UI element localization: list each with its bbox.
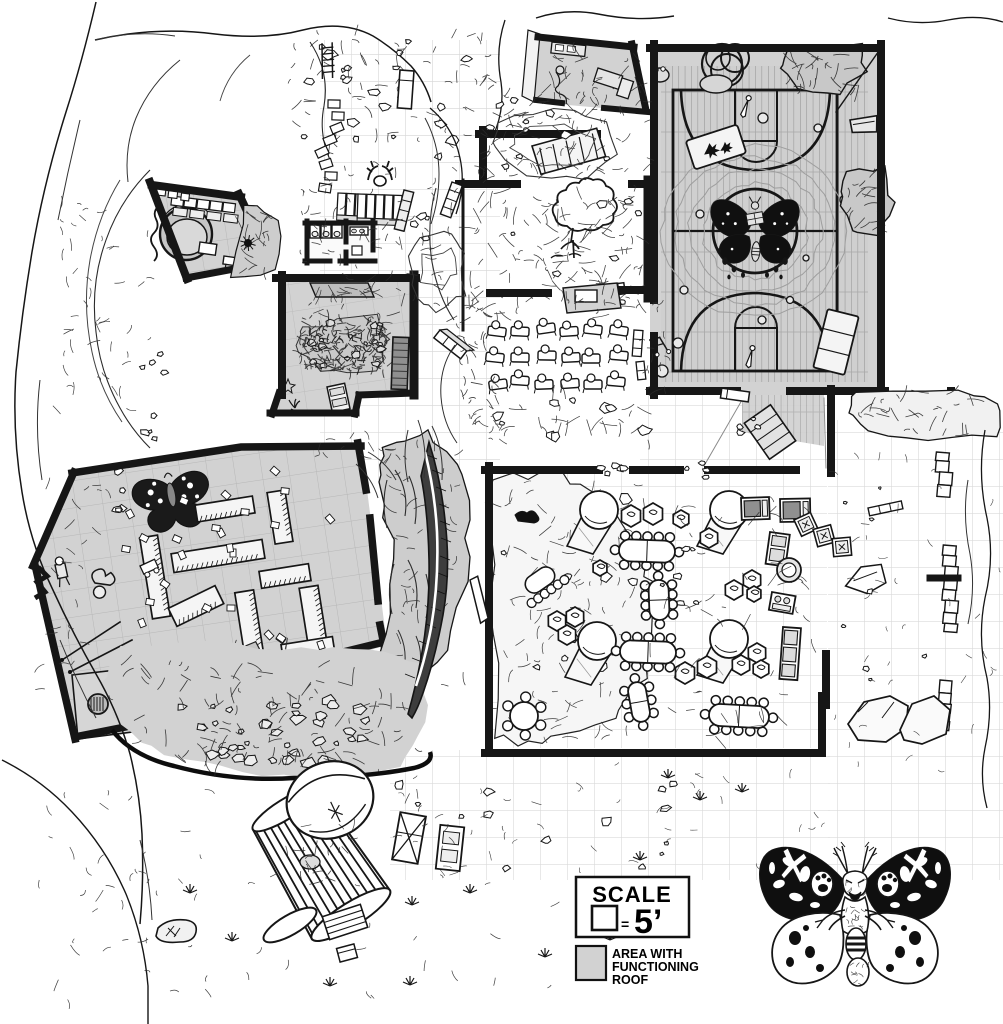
svg-text:=: = (621, 916, 629, 932)
svg-text:5’: 5’ (634, 903, 662, 941)
svg-text:ROOF: ROOF (612, 973, 648, 987)
svg-text:FUNCTIONING: FUNCTIONING (612, 960, 699, 974)
svg-text:AREA WITH: AREA WITH (612, 947, 682, 961)
